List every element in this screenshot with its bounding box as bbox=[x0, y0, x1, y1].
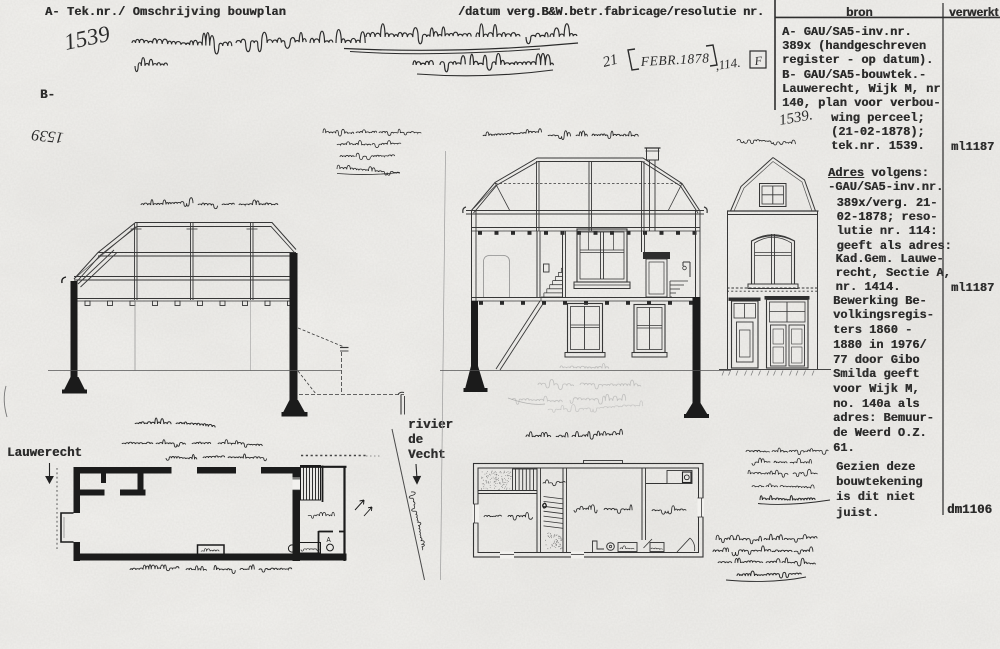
svg-text:1539: 1539 bbox=[31, 126, 65, 146]
